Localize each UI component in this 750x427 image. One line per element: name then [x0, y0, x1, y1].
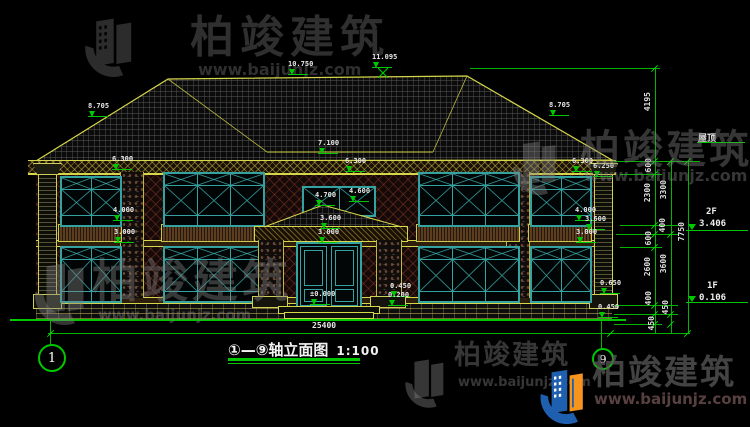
brand-logo-watermark: [28, 246, 92, 328]
window-mullion-column: [562, 248, 591, 301]
level-marker: ±0.000: [310, 291, 335, 305]
window-pane: [453, 186, 485, 216]
window-pane: [165, 216, 197, 225]
title-underline-thin: [228, 363, 360, 364]
brand-url-watermark: www.baijunjz.com: [98, 308, 251, 323]
window-pane: [486, 292, 518, 301]
window-pane: [198, 216, 230, 225]
window-pane: [562, 248, 591, 260]
brand-logo-color: [536, 358, 590, 424]
title-underline-thick: [228, 358, 360, 361]
window-pane: [532, 260, 561, 292]
window-pane: [532, 248, 561, 260]
axis-leader: [601, 320, 602, 349]
cad-elevation-canvas: 柏竣建筑 www.baijunjz.com: [0, 0, 750, 427]
window-pane: [62, 190, 91, 216]
level-marker: 7.100: [318, 140, 339, 154]
dim-text: 400: [659, 218, 667, 232]
window-pane: [420, 248, 452, 260]
level-marker: 4.000: [113, 207, 134, 221]
ridge-apex-marker: [378, 68, 388, 78]
level-marker: 0.450: [598, 304, 619, 318]
dim-line: [688, 161, 689, 333]
window-pane: [562, 292, 591, 301]
brand-text-watermark: 柏竣建筑: [580, 130, 750, 170]
brand-url-watermark: www.baijunjz.com: [594, 392, 747, 407]
window-pane: [486, 248, 518, 260]
window-pane: [420, 174, 452, 186]
floor1-label: 1F: [707, 281, 718, 291]
axis-bubble-1: 1: [38, 344, 66, 372]
level-marker: 11.095: [372, 54, 397, 68]
title-scale: 1:100: [336, 344, 379, 358]
window-pane: [165, 174, 197, 186]
window-pane: [562, 260, 591, 292]
dim-text: 4195: [644, 92, 652, 111]
window-pane: [453, 174, 485, 186]
door-panel: [335, 289, 354, 302]
dim-ext-line: [470, 68, 660, 69]
window-mullion-column: [231, 174, 263, 225]
window-pane: [198, 174, 230, 186]
level-marker: 3.000: [114, 229, 135, 243]
window-1f-right-wide: [418, 246, 520, 303]
dim-ext-line: [620, 225, 678, 226]
window-mullion-column: [198, 174, 231, 225]
window-pane: [231, 186, 263, 216]
level-marker: 8.705: [88, 103, 109, 117]
overall-dim-line: [48, 333, 690, 334]
window-pane: [420, 186, 452, 216]
window-pane: [532, 216, 561, 225]
dim-text: 7750: [678, 222, 686, 241]
left-column-capital: [33, 163, 62, 175]
window-pane: [420, 292, 452, 301]
window-pane: [453, 292, 485, 301]
brand-text-watermark: 柏竣建筑: [592, 356, 736, 390]
window-pane: [420, 260, 452, 292]
window-pane: [198, 186, 230, 216]
window-1f-right-pair: [530, 246, 592, 303]
window-pane: [486, 216, 518, 225]
dim-text: 450: [648, 316, 656, 330]
level-marker: 3.000: [318, 229, 339, 243]
window-mullion-column: [453, 248, 486, 301]
window-mullion-column: [420, 248, 453, 301]
dim-text: 2300: [644, 183, 652, 202]
dim-text: 400: [645, 291, 653, 305]
level-marker: 6.300: [345, 158, 366, 172]
dim-line: [655, 68, 656, 333]
window-mullion-column: [62, 178, 92, 225]
drawing-title: ①—⑨轴立面图1:100: [228, 339, 380, 360]
window-pane: [420, 216, 452, 225]
window-pane: [486, 260, 518, 292]
window-2f-left-wide: [163, 172, 265, 227]
brand-url-watermark: www.baijunjz.com: [584, 168, 747, 184]
window-pane: [532, 292, 561, 301]
title-text: ①—⑨轴立面图: [228, 341, 328, 359]
dim-text: 2600: [644, 257, 652, 276]
window-pane: [453, 260, 485, 292]
window-pane: [453, 248, 485, 260]
door-panel: [304, 250, 323, 286]
window-pane: [62, 178, 91, 190]
window-mullion-column: [486, 248, 518, 301]
brand-logo-watermark: [400, 338, 450, 418]
brand-logo-watermark: [498, 128, 572, 196]
overall-width-dim: 25400: [312, 321, 336, 330]
level-marker: 3.600: [320, 215, 341, 229]
window-mullion-column: [420, 174, 453, 225]
level-marker: 4.600: [349, 188, 370, 202]
window-pane: [165, 186, 197, 216]
window-mullion-column: [165, 174, 198, 225]
brand-text-watermark: 柏竣建筑: [190, 16, 390, 60]
floor2-label: 2F: [706, 207, 717, 217]
dim-ext-line: [620, 247, 662, 248]
dim-text: 450: [662, 300, 670, 314]
level-marker: 6.300: [112, 156, 133, 170]
level-marker: 3.000: [576, 229, 597, 243]
level-marker: 4.700: [315, 192, 336, 206]
floor1-elevation: 0.106: [699, 293, 726, 303]
window-pane: [453, 216, 485, 225]
window-pane: [92, 178, 121, 190]
level-marker: 8.705: [549, 102, 570, 116]
level-marker: 10.750: [288, 61, 313, 75]
door-panel: [335, 250, 354, 286]
brand-text-watermark: 柏竣建筑: [92, 258, 292, 304]
level-marker: 0.650: [600, 280, 621, 294]
window-pane: [231, 174, 263, 186]
window-mullion-column: [453, 174, 486, 225]
floor2-elevation: 3.406: [699, 219, 726, 229]
dim-line: [671, 161, 672, 333]
dim-text: 600: [645, 231, 653, 245]
level-marker: 0.200: [388, 292, 409, 306]
dim-text: 3600: [660, 254, 668, 273]
window-pane: [231, 216, 263, 225]
entrance-step: [284, 312, 374, 319]
window-pane: [62, 216, 91, 225]
window-mullion-column: [532, 248, 562, 301]
